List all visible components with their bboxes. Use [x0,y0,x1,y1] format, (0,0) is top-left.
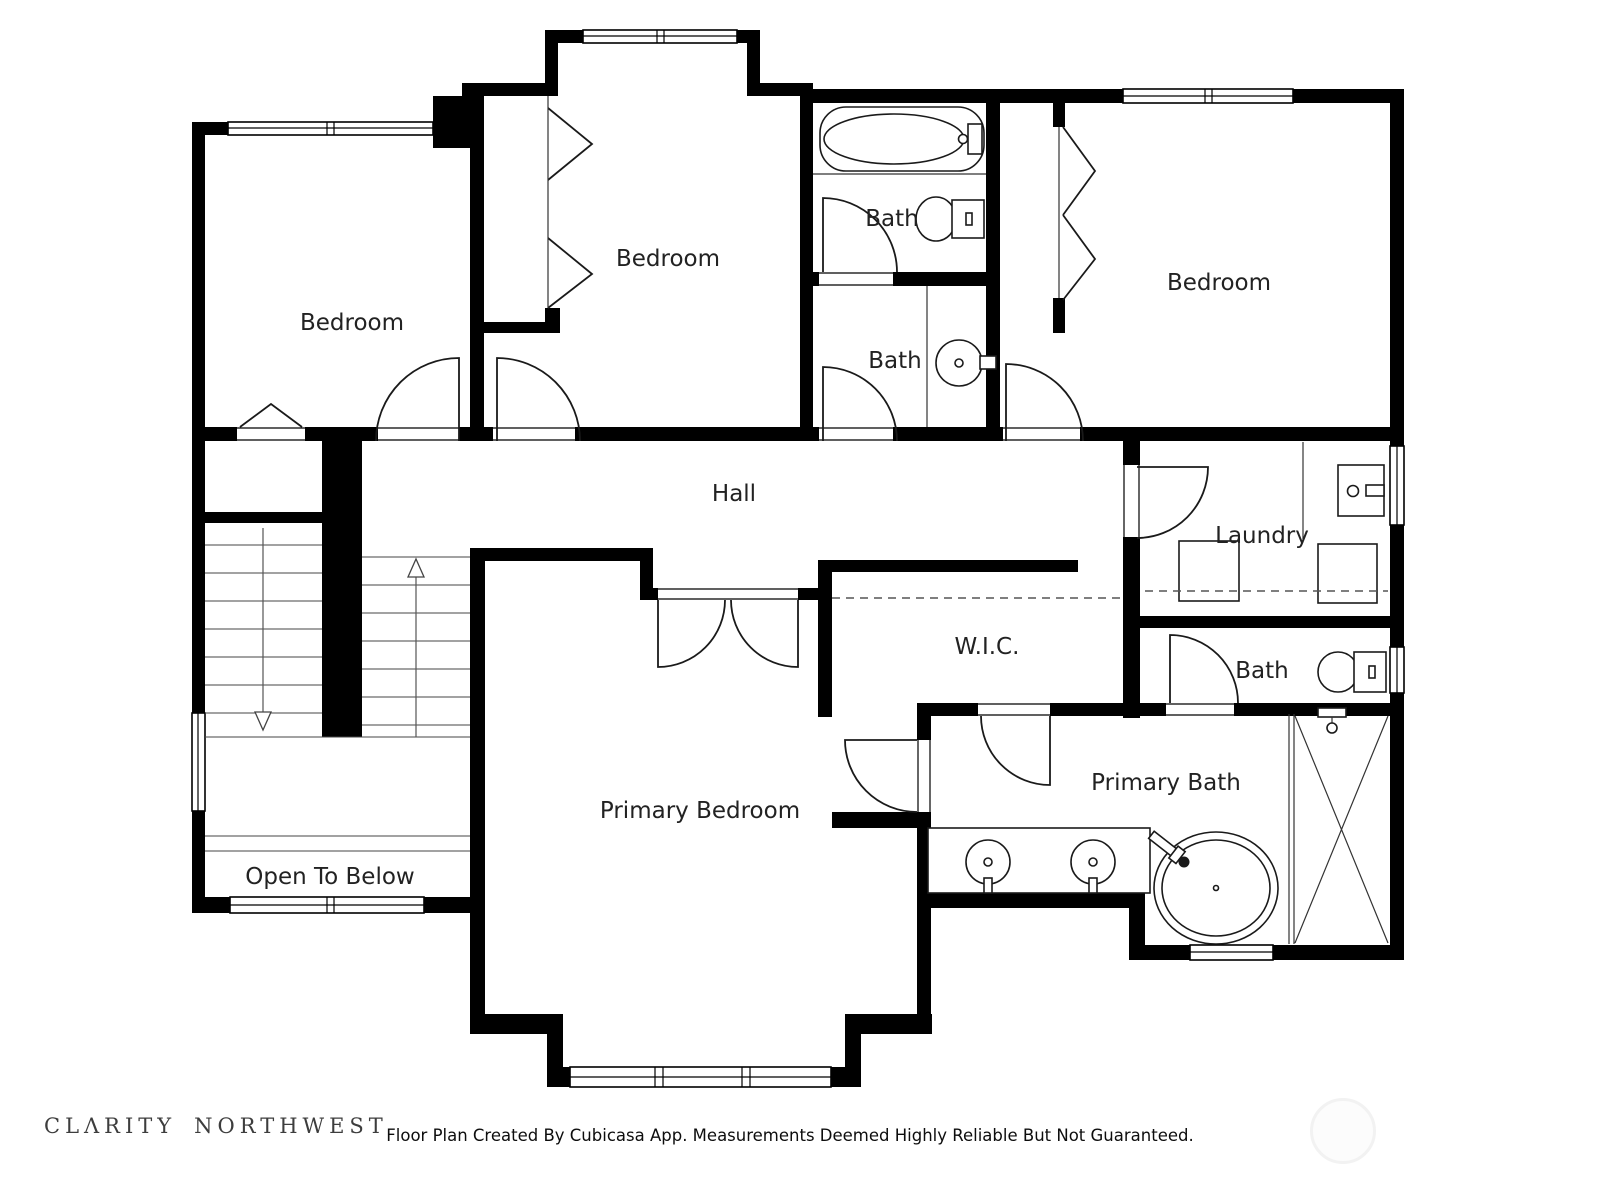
open-to-below-edge [205,836,470,851]
double-door-icon [731,600,798,667]
window-icon [228,122,433,135]
door-swing-icon [1170,635,1238,703]
room-label-hall: Hall [712,481,756,507]
room-label-bath-top: Bath [865,206,918,232]
room-label-bath-right: Bath [1235,658,1288,684]
toilet-icon [1318,652,1386,692]
washer-icon [1179,541,1239,601]
room-label-wic: W.I.C. [955,634,1020,660]
double-door-icon [658,600,725,667]
disclaimer-text: Floor Plan Created By Cubicasa App. Meas… [386,1126,1193,1145]
bifold-closet-door-icon [548,108,592,308]
window-icon [1190,945,1273,960]
floor-plan-drawing: Bedroom Bedroom Bedroom Bath Bath Hall L… [0,0,1600,1200]
room-label-open-to-below: Open To Below [245,864,414,890]
window-icon [583,30,737,43]
freestanding-tub-icon [1147,829,1278,944]
bifold-closet-door-icon [1063,127,1095,300]
door-swing-icon [981,716,1050,785]
room-label-bath-middle: Bath [868,348,921,374]
logo-word-northwest: NORTHWEST [194,1114,388,1138]
stairs-up-arrow-icon [408,559,424,577]
bifold-closet-door-icon [240,404,302,427]
toilet-icon [916,197,984,241]
window-icon [230,897,424,913]
window-icon [570,1067,831,1087]
window-icon [1390,446,1404,525]
room-label-primary-bath: Primary Bath [1091,770,1241,796]
window-icon [1123,89,1293,103]
shower-icon [1289,708,1388,944]
logo-word-clarity: CLΛRITY [44,1114,176,1138]
watermark-circle-icon [1310,1098,1376,1164]
double-vanity-sink-icon [928,828,1150,893]
room-label-primary-bedroom: Primary Bedroom [600,798,800,824]
laundry-sink-icon [1338,465,1384,516]
floor-plan-page: Bedroom Bedroom Bedroom Bath Bath Hall L… [0,0,1600,1200]
bathtub-icon [820,107,984,171]
room-label-laundry: Laundry [1215,523,1309,549]
door-openings [237,272,1234,812]
room-label-bedroom-middle: Bedroom [616,246,720,272]
door-swing-icon [1137,467,1208,538]
company-logo: CLΛRITYNORTHWEST [44,1114,388,1138]
stairs-down-arrow-icon [255,712,271,730]
shower-head-icon [1318,708,1346,733]
room-label-bedroom-right: Bedroom [1167,270,1271,296]
door-swing-icon [845,740,917,812]
dryer-icon [1318,544,1377,603]
room-label-bedroom-left: Bedroom [300,310,404,336]
room-labels: Bedroom Bedroom Bedroom Bath Bath Hall L… [245,206,1309,890]
window-icon [192,713,205,811]
window-icon [1390,647,1404,693]
